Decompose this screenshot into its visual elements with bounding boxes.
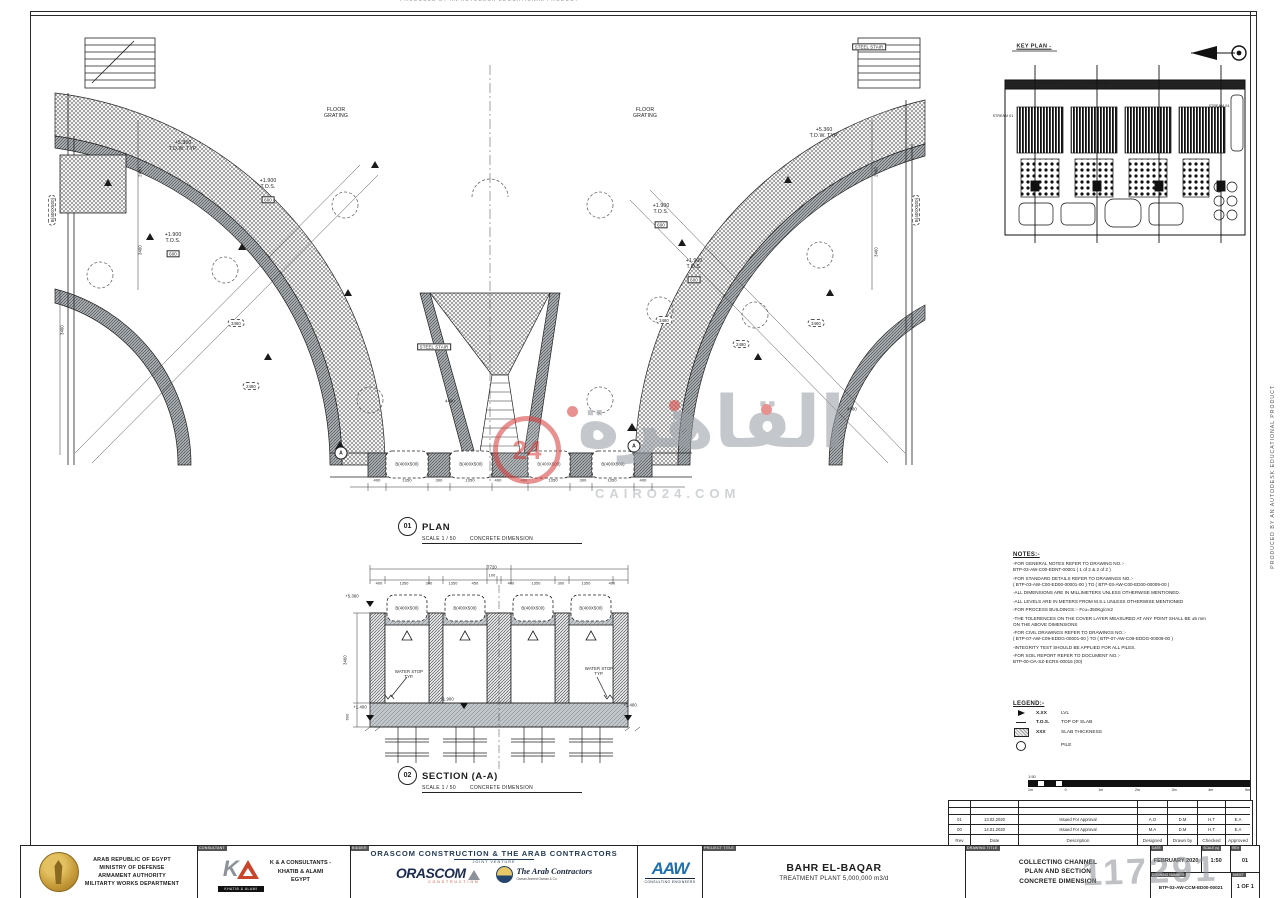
orascom-logo: ORASCOM CONSTRUCTION	[396, 866, 480, 884]
drawing-title-line: COLLECTING CHANNEL	[1019, 858, 1097, 867]
rev-cell: REV 01	[1231, 846, 1259, 872]
note-item: -FOR GENERAL NOTES REFER TO DRAWING NO.:…	[1013, 561, 1251, 573]
section-title-tag: 02 SECTION (A-A) SCALE 1 / 50 CONCRETE D…	[398, 766, 582, 793]
dimension: 300	[436, 479, 443, 484]
consultant-cell: CONSULTANT K KHATIB & ALAMI K & A CONSUL…	[198, 846, 351, 898]
piles	[365, 727, 640, 763]
revision-row	[949, 801, 1252, 808]
drawing-number-cell: DRAWING NUMBER BTP-03-AW-CCM-ED00-00021	[1151, 873, 1232, 898]
dimension: 3460	[808, 319, 825, 327]
arab-contractors-disc-icon	[496, 866, 513, 883]
stream-02-label: STREAM 02	[1039, 81, 1060, 85]
sheet-cell: SHEET 1 OF 1	[1232, 873, 1259, 898]
slab-thickness-label: 600	[688, 276, 701, 283]
note-item: -THE TOLERENCES ON THE COVER LAYER MEASU…	[1013, 616, 1251, 628]
dimension: 3460	[137, 245, 142, 255]
legend-title: LEGEND:-	[1013, 701, 1243, 707]
key-plan-title: KEY PLAN -	[1016, 44, 1051, 51]
ka-logo-text: KHATIB & ALAMI	[218, 886, 264, 892]
section-number-bubble: 02	[398, 766, 417, 785]
dimension: 400	[495, 479, 502, 484]
owner-line: MILITARTY WORKS DEPARTMENT	[85, 880, 179, 888]
scale-tick: 1m	[1028, 788, 1033, 792]
plan-note: CONCRETE DIMENSION	[470, 536, 533, 542]
level-label: +1.900 T.O.S.	[260, 178, 277, 190]
legend-panel: LEGEND:- X.XXLVLT.O.S.TOP OF SLABXXXSLAB…	[1013, 701, 1243, 754]
note-item: -INTEGRITY TEST SHOULD BE APPLIED FOR AL…	[1013, 645, 1251, 651]
revision-row: 0113.02.2020Issued For ApprovalA.OD.MH.T…	[949, 815, 1252, 825]
plan-number-bubble: 01	[398, 517, 417, 536]
dimension: 1350	[607, 479, 616, 484]
dimension: 1350	[400, 582, 409, 587]
ka-triangle-icon	[237, 860, 259, 879]
level-label: +5.360 T.O.W. TYP.	[169, 140, 198, 152]
steel-stair-label: STEEL STAIR	[852, 43, 886, 50]
note-item: -FOR STANDARD DETAILS REFER TO DRAWINGS …	[1013, 576, 1251, 588]
dimension: 2480	[733, 340, 750, 348]
section-title: SECTION (A-A)	[422, 771, 498, 782]
beam-label: B(400X500)	[601, 461, 624, 466]
project-name: BAHR EL-BAQAR	[786, 862, 881, 874]
level-label: +1.900	[440, 696, 454, 701]
scale-bar-ticks: 1m01m2m3m4m5m	[1028, 788, 1250, 792]
scale-ratio: 1:50	[1028, 774, 1250, 779]
note-item: -ALL LEVELS ARE IN METERS FROM M.S.L UNL…	[1013, 599, 1251, 605]
aaw-cell: AAW CONSULTING ENGINEERS	[638, 846, 703, 898]
date-cell: DATE FEBRUARY 2020	[1151, 846, 1202, 872]
level-label: +1.900 T.O.S.	[686, 258, 703, 270]
scale-bar-graphic	[1028, 780, 1250, 787]
consultant-line: KHATIB & ALAMI	[270, 868, 331, 876]
drawing-title-tag: DRAWING TITLE	[966, 846, 1000, 851]
project-tag: PROJECT TITLE	[703, 846, 736, 851]
dimension: 1350	[532, 582, 541, 587]
water-stop-label: WATER STOP TYP.	[395, 669, 423, 679]
notes-title: NOTES:-	[1013, 552, 1251, 558]
key-plan	[995, 35, 1255, 247]
note-item: -FOR SOIL REPORT REFER TO DOCUMENT NO.:-…	[1013, 653, 1251, 665]
aaw-subtitle: CONSULTING ENGINEERS	[645, 878, 696, 884]
plan-scale: SCALE 1 / 50	[422, 536, 456, 542]
rev-value: 01	[1242, 858, 1248, 864]
scale-tick: 0	[1065, 788, 1067, 792]
beam-label: B(400X500)	[521, 605, 544, 610]
dimension: 7720	[487, 564, 497, 569]
dimension: 450	[472, 582, 479, 587]
scale-tick: 4m	[1208, 788, 1213, 792]
beam-label: B(400X500)	[579, 605, 602, 610]
drawing-number-value: BTP-03-AW-CCM-ED00-00021	[1159, 885, 1223, 890]
drawing-sheet: { "watermark": {"arabic":"القاهرة","numb…	[0, 0, 1280, 898]
dimension: 400	[376, 582, 383, 587]
legend-pile-icon	[1016, 741, 1026, 751]
consultant-line: K & A CONSULTANTS -	[270, 859, 331, 867]
stream-04-label: STREAM 04	[1209, 104, 1230, 108]
revision-table: 0113.02.2020Issued For ApprovalA.OD.MH.T…	[948, 800, 1253, 846]
legend-item: PILE	[1013, 741, 1243, 751]
north-arrow	[1191, 46, 1246, 60]
level-label: +1.400	[353, 704, 367, 709]
dimension: 1350	[465, 479, 474, 484]
level-label: +5.360 T.O.W. TYP.	[810, 127, 839, 139]
dimension: 4480	[847, 406, 857, 411]
slab-thickness-label: 600	[262, 196, 275, 203]
aaw-logo: AAW	[652, 860, 689, 877]
meta-cell: DATE FEBRUARY 2020 SCALE (s) 1:50 REV 01…	[1151, 846, 1259, 898]
frame-right-outer	[1256, 11, 1257, 897]
project-title-cell: PROJECT TITLE BAHR EL-BAQAR TREATMENT PL…	[703, 846, 966, 898]
note-item: -FOR PROCESS BUILDINGS :- Fcu=350Kg/cm2	[1013, 607, 1251, 613]
legend-thk-icon	[1014, 728, 1029, 737]
khatib-alami-logo: K KHATIB & ALAMI	[217, 852, 265, 892]
consultant-tag: CONSULTANT	[198, 846, 227, 851]
revision-header-row: RevDateDescriptionDesignedDrawn byChecke…	[949, 835, 1252, 845]
dimension: 3460	[873, 247, 878, 257]
dimension: 400	[374, 479, 381, 484]
egypt-emblem-logo	[39, 852, 79, 892]
section-cut-marker: A	[335, 447, 348, 460]
plan-title: PLAN	[422, 522, 450, 533]
dimension: 1350	[548, 479, 557, 484]
produced-text-right: PRODUCED BY AN AUTODESK EDUCATIONAL PROD…	[1270, 385, 1276, 569]
drawing-title-cell: DRAWING TITLE COLLECTING CHANNEL PLAN AN…	[966, 846, 1151, 898]
dimension: 2480	[873, 167, 878, 177]
revision-row	[949, 808, 1252, 815]
joint-venture-title: ORASCOM CONSTRUCTION & THE ARAB CONTRACT…	[370, 849, 617, 858]
title-block: ARAB REPUBLIC OF EGYPT MINISTRY OF DEFEN…	[20, 845, 1260, 898]
floor-grating-label: FLOOR GRATING	[633, 107, 657, 119]
dimension: 1350	[582, 582, 591, 587]
stream-03-label: STREAM 03	[1087, 81, 1108, 85]
dimension: 400	[508, 582, 515, 587]
level-label: +1.900 T.O.S.	[165, 232, 182, 244]
owner-line: ARAB REPUBLIC OF EGYPT	[85, 856, 179, 864]
steel-stair-label: STEEL STAIR	[417, 343, 451, 350]
legend-item: XXXSLAB THICKNESS	[1013, 728, 1243, 737]
scale-cell: SCALE (s) 1:50	[1202, 846, 1231, 872]
legend-item: T.O.S.TOP OF SLAB	[1013, 720, 1243, 725]
legend-item: X.XXLVL	[1013, 710, 1243, 716]
sheet-value: 1 OF 1	[1237, 884, 1254, 890]
beam-label: B(400X500)	[395, 461, 418, 466]
notes-list: -FOR GENERAL NOTES REFER TO DRAWING NO.:…	[1013, 561, 1251, 665]
beam-label: B(400X500)	[48, 194, 56, 225]
legend-tos-icon	[1016, 722, 1026, 723]
scale-tick: 2m	[1135, 788, 1140, 792]
frame-top-outer	[30, 11, 1257, 12]
scale-tick: 5m	[1245, 788, 1250, 792]
dimension: 4480	[445, 398, 455, 403]
bidder-cell: BIDDER ORASCOM CONSTRUCTION & THE ARAB C…	[351, 846, 638, 898]
dimension: 3460	[59, 325, 64, 335]
dimension: 400	[609, 582, 616, 587]
owner-cell: ARAB REPUBLIC OF EGYPT MINISTRY OF DEFEN…	[21, 846, 198, 898]
beam-label: B(400X500)	[912, 194, 920, 225]
joint-venture-subtitle: JOINT VENTURE	[454, 859, 533, 864]
arab-contractors-logo: The Arab Contractors Osman Ahmed Osman &…	[496, 866, 593, 883]
date-value: FEBRUARY 2020	[1154, 858, 1199, 864]
note-item: -ALL DIMENSIONS ARE IN MILLIMETERS UNLES…	[1013, 590, 1251, 596]
dimension: 2480	[243, 382, 260, 390]
owner-line: ARMAMENT AUTHORITY	[85, 872, 179, 880]
dimension: 100	[489, 574, 496, 579]
dimension: 300	[558, 582, 565, 587]
drawing-title-line: PLAN AND SECTION	[1019, 867, 1097, 876]
level-label: +5.360	[345, 593, 359, 598]
notes-panel: NOTES:- -FOR GENERAL NOTES REFER TO DRAW…	[1013, 552, 1251, 668]
water-stop-label: WATER STOP TYP.	[585, 666, 613, 676]
dimension: 1350	[402, 479, 411, 484]
revision-row: 0014.01.2020Issued For ApprovalM.AD.MH.T…	[949, 825, 1252, 835]
drawing-title-line: CONCRETE DIMENSION	[1019, 877, 1097, 886]
produced-text-top: PRODUCED BY AN AUTODESK EDUCATIONAL PROD…	[400, 0, 579, 3]
legend-lvl-icon	[1018, 710, 1025, 716]
slab-thickness-label: 600	[167, 250, 180, 257]
bidder-tag: BIDDER	[351, 846, 369, 851]
beam-label: B(400X500)	[453, 605, 476, 610]
dimension: 600	[346, 714, 351, 721]
note-item: -FOR CIVIL DRAWINGS REFER TO DRAWINGS NO…	[1013, 630, 1251, 642]
dimension: 400	[521, 479, 528, 484]
floor-grating-label: FLOOR GRATING	[324, 107, 348, 119]
section-scale: SCALE 1 / 50	[422, 785, 456, 791]
dimension: 3460	[228, 319, 245, 327]
dimension: 3460	[342, 655, 347, 665]
frame-top-inner	[30, 15, 1257, 16]
slab-thickness-label: 600	[655, 221, 668, 228]
beam-label: B(400X500)	[395, 605, 418, 610]
dimension: 300	[426, 582, 433, 587]
scale-tick: 3m	[1172, 788, 1177, 792]
beam-label: B(400X500)	[459, 461, 482, 466]
dimension: 400	[640, 479, 647, 484]
plan-title-tag: 01 PLAN SCALE 1 / 50 CONCRETE DIMENSION	[398, 517, 582, 544]
stream-01-label: STREAM 01	[993, 114, 1014, 118]
section-cut-marker: A	[628, 440, 641, 453]
scale-value: 1:50	[1211, 858, 1222, 864]
graphic-scale-bar: 1:50 1m01m2m3m4m5m	[1028, 774, 1250, 792]
owner-line: MINISTRY OF DEFENSE	[85, 864, 179, 872]
dimension: 2480	[137, 167, 142, 177]
plan-drawing	[30, 25, 950, 495]
dimension: 1350	[449, 582, 458, 587]
level-label: +1.900 T.O.S.	[653, 203, 670, 215]
project-subtitle: TREATMENT PLANT 5,000,000 m3/d	[779, 876, 888, 882]
beam-label: B(400X500)	[537, 461, 560, 466]
legend-list: X.XXLVLT.O.S.TOP OF SLABXXXSLAB THICKNES…	[1013, 710, 1243, 751]
level-label: +1.400	[623, 702, 637, 707]
dimension: 300	[580, 479, 587, 484]
orascom-pyramid-icon	[468, 870, 480, 880]
scale-tick: 1m	[1098, 788, 1103, 792]
section-note: CONCRETE DIMENSION	[470, 785, 533, 791]
dimension: 3460	[656, 316, 673, 324]
consultant-line: EGYPT	[270, 876, 331, 884]
